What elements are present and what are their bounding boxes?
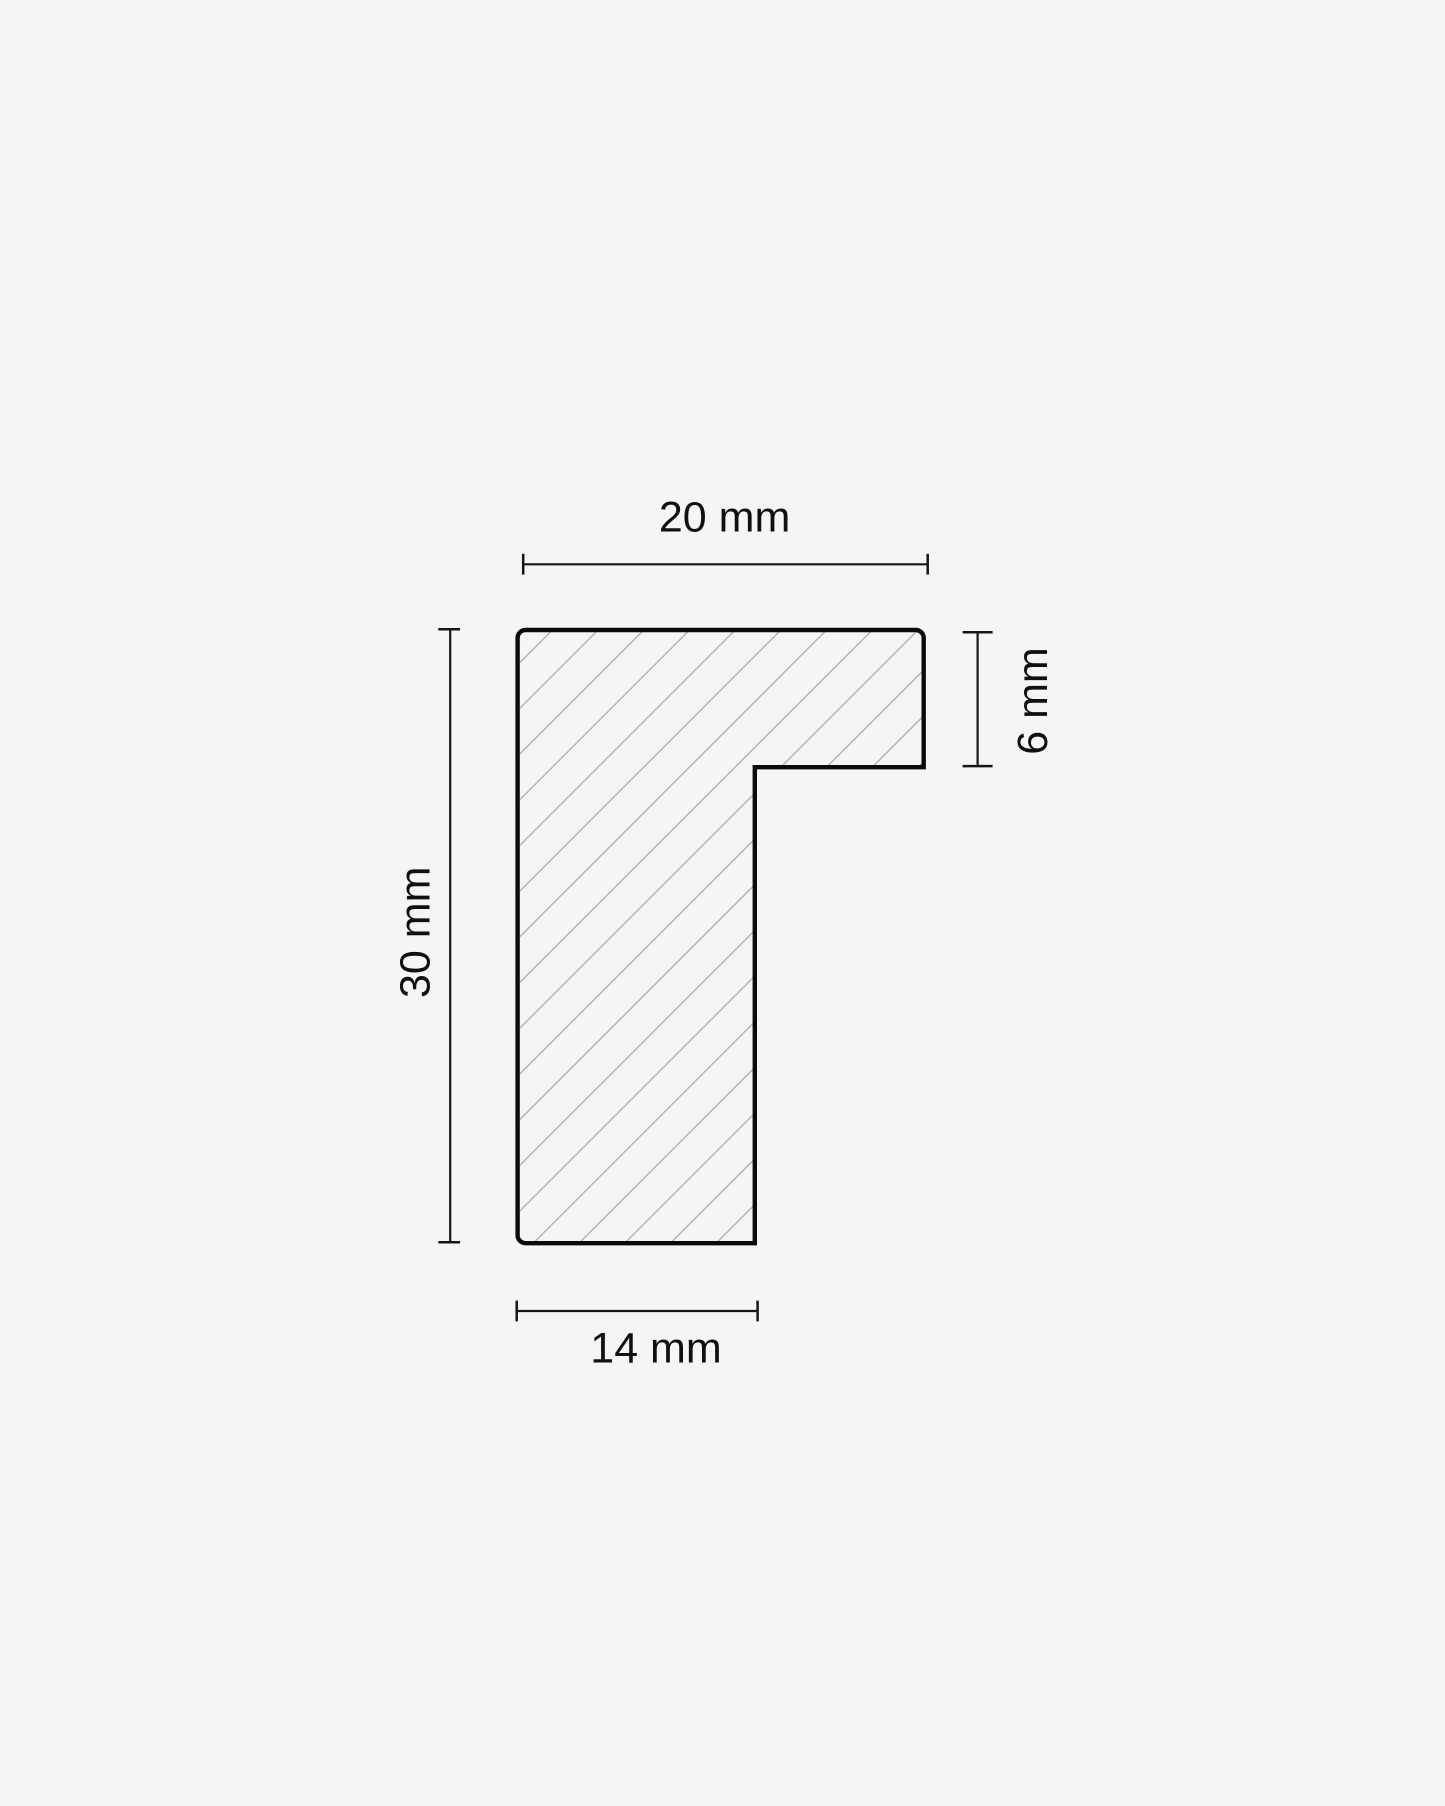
svg-text:20 mm: 20 mm (659, 494, 790, 542)
svg-text:30 mm: 30 mm (392, 867, 440, 998)
svg-text:14 mm: 14 mm (590, 1325, 721, 1373)
svg-text:6 mm: 6 mm (1009, 647, 1057, 755)
